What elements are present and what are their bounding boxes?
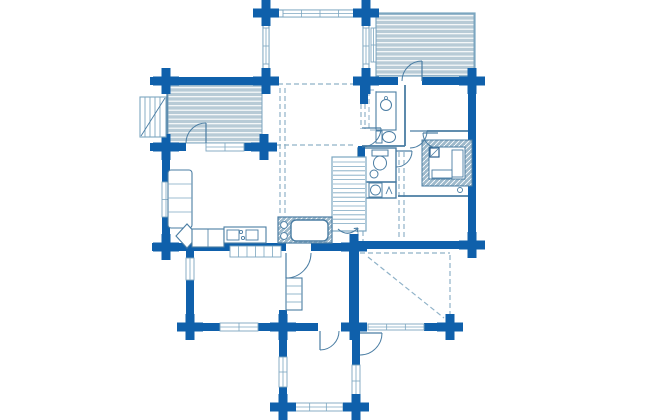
- kitchen-sink-unit: [224, 227, 266, 243]
- plan-background: [0, 0, 650, 420]
- corner-post-h: [153, 243, 179, 252]
- sofa-west-run: [168, 170, 192, 228]
- wc-toilet-tank: [372, 150, 388, 156]
- corner-post-h: [253, 77, 279, 86]
- bath-toilet-bowl: [383, 132, 396, 143]
- corner-post-h: [343, 403, 369, 412]
- corner-post-h: [153, 77, 179, 86]
- corner-post-h: [459, 241, 485, 250]
- corner-post-h: [251, 143, 277, 152]
- terrace-left-deck: [168, 85, 262, 143]
- corner-post-h: [270, 323, 296, 332]
- floor-plan-canvas: [0, 0, 650, 420]
- kitchen-oven: [291, 220, 328, 241]
- corner-post-h: [177, 323, 203, 332]
- stairs-outline: [332, 157, 366, 231]
- sauna-bench-south: [432, 170, 452, 178]
- wc-toilet-bowl: [374, 156, 387, 170]
- corner-post-h: [437, 323, 463, 332]
- corner-post-h: [153, 143, 179, 152]
- corner-post-h: [341, 243, 367, 252]
- corner-post-h: [341, 323, 367, 332]
- corner-post-h: [459, 77, 485, 86]
- sauna-bench-east: [452, 150, 463, 177]
- corner-post-h: [353, 9, 379, 18]
- terrace-upper-right-deck: [376, 14, 474, 76]
- stove-burner-b: [281, 233, 288, 240]
- corner-post-h: [270, 403, 296, 412]
- stove-burner-a: [281, 222, 288, 229]
- corner-post-h: [253, 9, 279, 18]
- corner-post-h: [353, 77, 379, 86]
- floor-plan-page: [0, 0, 650, 420]
